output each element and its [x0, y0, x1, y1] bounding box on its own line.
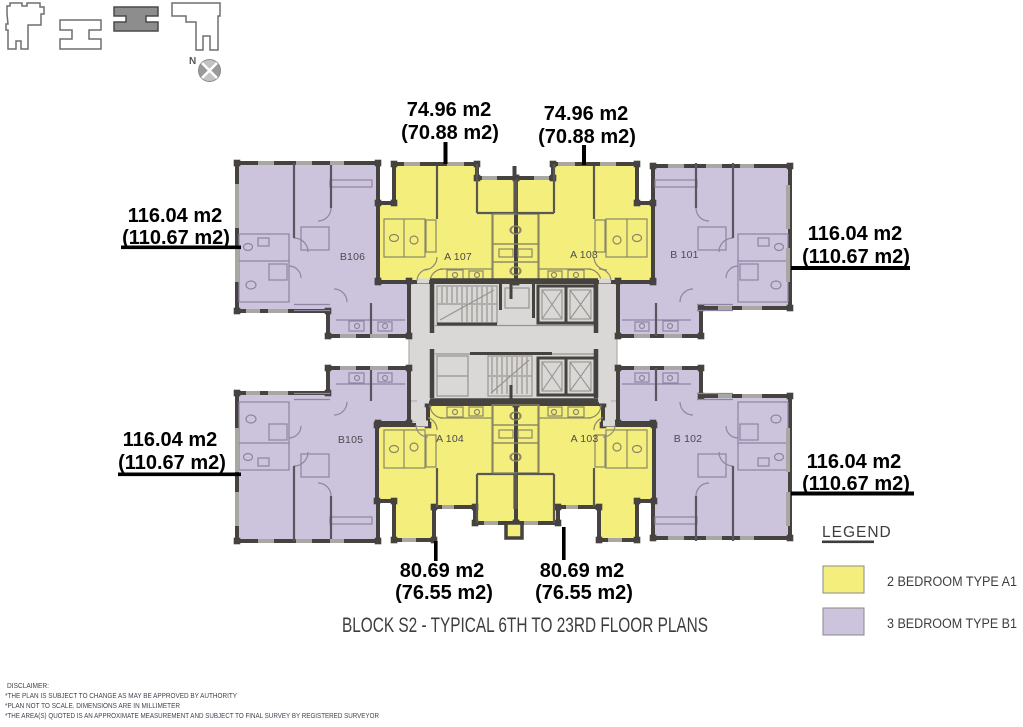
svg-text:A 103: A 103 [571, 433, 599, 445]
svg-text:80.69 m2: 80.69 m2 [400, 560, 485, 582]
svg-text:74.96 m2: 74.96 m2 [544, 103, 629, 125]
svg-text:*PLAN NOT TO SCALE. DIMENSIONS: *PLAN NOT TO SCALE. DIMENSIONS ARE IN MI… [5, 701, 180, 710]
svg-text:(110.67 m2): (110.67 m2) [802, 246, 910, 268]
svg-text:(110.67 m2): (110.67 m2) [118, 452, 226, 474]
svg-text:(76.55 m2): (76.55 m2) [395, 582, 493, 604]
svg-text:A 104: A 104 [436, 433, 464, 445]
svg-text:B 101: B 101 [670, 249, 698, 261]
svg-text:116.04 m2: 116.04 m2 [808, 223, 903, 245]
svg-text:(110.67 m2): (110.67 m2) [122, 227, 230, 249]
svg-text:(70.88 m2): (70.88 m2) [538, 126, 636, 148]
svg-text:(110.67 m2): (110.67 m2) [802, 473, 910, 495]
svg-text:116.04 m2: 116.04 m2 [807, 451, 902, 473]
svg-text:80.69 m2: 80.69 m2 [540, 560, 625, 582]
svg-text:74.96 m2: 74.96 m2 [407, 99, 492, 121]
svg-text:A 107: A 107 [444, 251, 472, 263]
svg-text:A 108: A 108 [570, 249, 598, 261]
svg-text:(70.88 m2): (70.88 m2) [401, 122, 499, 144]
svg-text:B106: B106 [340, 251, 365, 263]
svg-text:3 BEDROOM TYPE B1: 3 BEDROOM TYPE B1 [887, 616, 1017, 631]
svg-text:B105: B105 [338, 434, 363, 446]
svg-text:LEGEND: LEGEND [822, 524, 892, 541]
svg-text:*THE PLAN IS SUBJECT TO CHANGE: *THE PLAN IS SUBJECT TO CHANGE AS MAY BE… [5, 691, 237, 700]
svg-text:116.04 m2: 116.04 m2 [123, 429, 218, 451]
svg-text:N: N [189, 56, 196, 67]
svg-text:*THE AREA(S) QUOTED IS AN APPR: *THE AREA(S) QUOTED IS AN APPROXIMATE ME… [5, 711, 379, 720]
svg-text:116.04 m2: 116.04 m2 [128, 205, 223, 227]
svg-text:(76.55 m2): (76.55 m2) [535, 582, 633, 604]
svg-text:DISCLAIMER:: DISCLAIMER: [7, 681, 49, 690]
svg-text:BLOCK S2 - TYPICAL 6TH TO 23RD: BLOCK S2 - TYPICAL 6TH TO 23RD FLOOR PLA… [342, 614, 708, 637]
svg-text:2 BEDROOM TYPE A1: 2 BEDROOM TYPE A1 [887, 574, 1017, 589]
svg-text:B 102: B 102 [674, 433, 702, 445]
